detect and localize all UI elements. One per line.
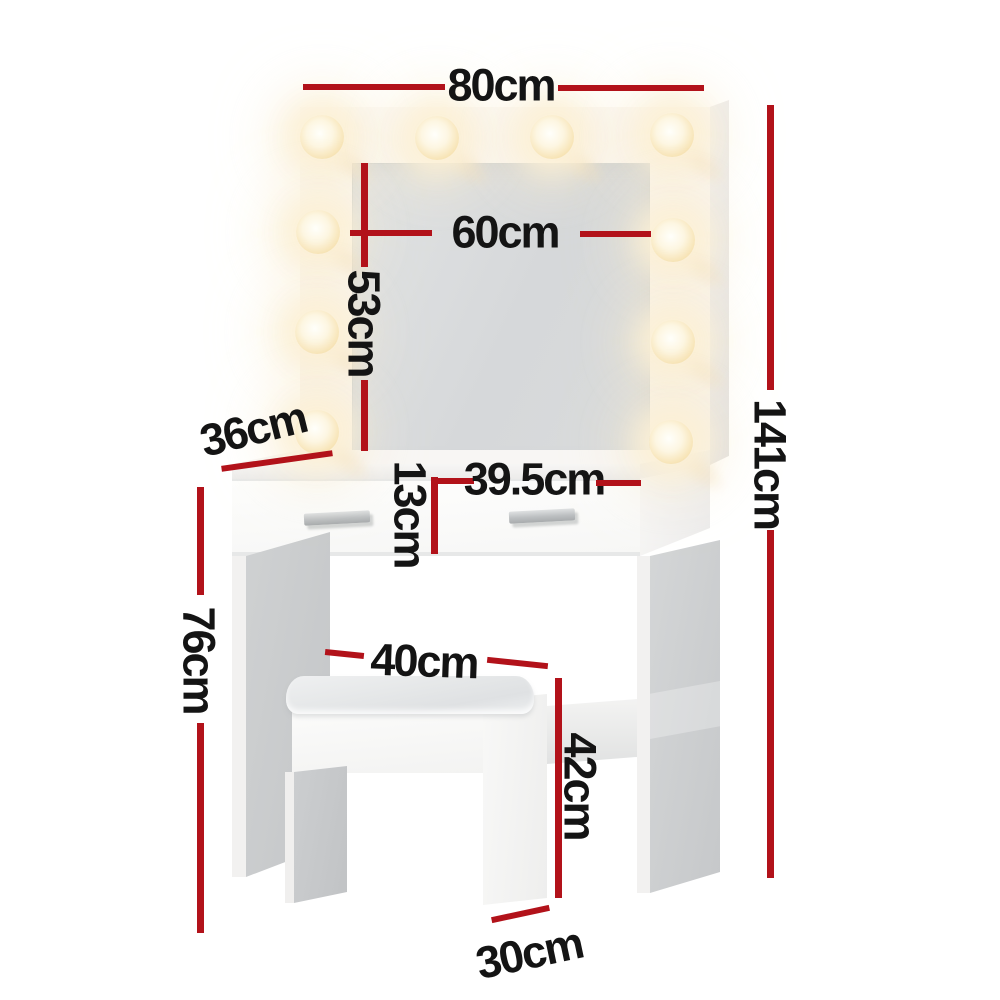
led-bulb bbox=[296, 210, 340, 254]
dim-30cm-line bbox=[491, 905, 550, 923]
led-bulb bbox=[651, 218, 695, 262]
led-bulb bbox=[295, 310, 339, 354]
dim-39point5cm-label: 39.5cm bbox=[464, 457, 605, 502]
table-leg-right-front bbox=[637, 556, 650, 893]
table-leg-left-front bbox=[232, 556, 246, 877]
stool-leg-left-front bbox=[285, 772, 294, 903]
dim-60cm-line-right bbox=[580, 231, 651, 237]
dim-42cm-label: 42cm bbox=[558, 732, 603, 839]
dim-53cm-label: 53cm bbox=[342, 269, 387, 376]
dim-141cm-line-bottom bbox=[767, 530, 774, 878]
led-bulb bbox=[300, 115, 344, 159]
dim-141cm-line-top bbox=[767, 105, 774, 390]
dimension-diagram: 80cm 141cm 60cm 53cm 36cm 13cm 39.5cm 76… bbox=[0, 0, 1000, 1000]
led-bulb bbox=[650, 113, 694, 157]
led-bulb bbox=[530, 115, 574, 159]
dim-13cm-label: 13cm bbox=[388, 460, 433, 567]
led-bulb bbox=[651, 320, 695, 364]
dim-53cm-line-bottom bbox=[361, 380, 368, 451]
dim-76cm-line-top bbox=[197, 487, 204, 595]
dim-53cm-line-top bbox=[361, 163, 368, 267]
dim-39point5cm-line-right bbox=[596, 480, 641, 486]
dim-80cm-line-right bbox=[558, 85, 704, 91]
stool-right-panel bbox=[483, 694, 547, 905]
stool-leg-left-side bbox=[294, 766, 347, 903]
dim-80cm-label: 80cm bbox=[447, 63, 554, 108]
dim-141cm-label: 141cm bbox=[748, 399, 793, 529]
dim-40cm-label: 40cm bbox=[370, 637, 479, 686]
dim-30cm-label: 30cm bbox=[472, 920, 586, 986]
dim-80cm-line-left bbox=[303, 84, 445, 90]
dim-40cm-line-right bbox=[487, 657, 548, 669]
dim-40cm-line-left bbox=[325, 649, 364, 659]
dim-76cm-label: 76cm bbox=[177, 606, 222, 713]
led-bulb bbox=[415, 116, 459, 160]
dim-60cm-label: 60cm bbox=[451, 210, 558, 255]
dim-76cm-line-bottom bbox=[197, 723, 204, 933]
led-bulb bbox=[649, 420, 693, 464]
